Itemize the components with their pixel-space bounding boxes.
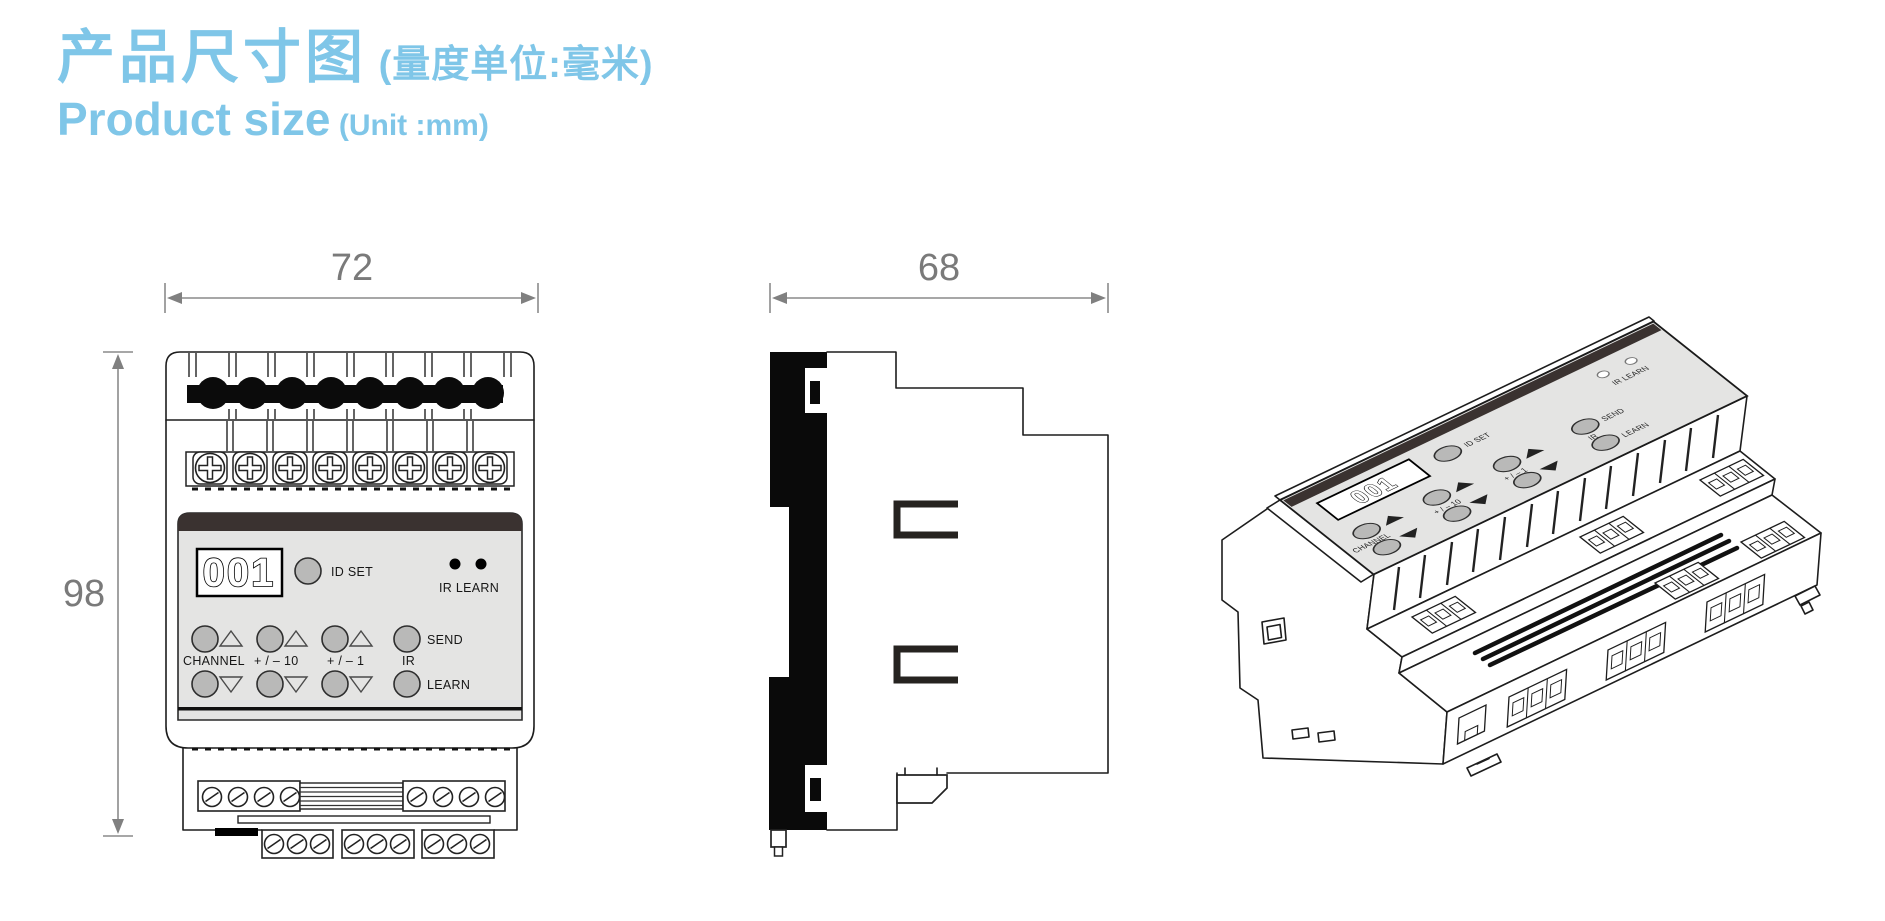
title-chinese: 产品尺寸图 (量度单位:毫米) [57, 28, 654, 89]
front-view: 72 98 [63, 247, 538, 858]
title-en-unit: (Unit :mm) [331, 109, 489, 142]
id-display-value: 001 [203, 551, 276, 595]
front-width-value: 72 [331, 247, 373, 289]
ir-learn-label: IR LEARN [439, 581, 499, 595]
side-profile [769, 352, 1108, 856]
page: 产品尺寸图 (量度单位:毫米) Product size (Unit :mm) [0, 0, 1885, 921]
side-front-band [769, 352, 827, 830]
step10-down-button[interactable] [257, 671, 283, 697]
arrowhead-right-icon [521, 292, 536, 304]
bottom-clip [771, 830, 786, 847]
side-depth-value: 68 [918, 247, 960, 289]
iso-din-latch-left[interactable] [1467, 754, 1501, 776]
learn-button[interactable] [394, 671, 420, 697]
channel-up-button[interactable] [192, 626, 218, 652]
side-depth-dimension: 68 [770, 247, 1108, 313]
title-cn-unit: (量度单位:毫米) [367, 44, 654, 86]
arrowhead-right-icon [1091, 292, 1106, 304]
arrowhead-left-icon [772, 292, 787, 304]
panel-top-stripe [178, 513, 522, 531]
step10-label: + / – 10 [254, 654, 298, 668]
panel-bottom-rule [178, 707, 522, 711]
front-device-body: 001 ID SET IR LEARN [166, 352, 534, 858]
front-width-dimension: 72 [165, 247, 538, 313]
title-english: Product size (Unit :mm) [57, 95, 654, 143]
step1-down-button[interactable] [322, 671, 348, 697]
front-panel: 001 ID SET IR LEARN [178, 513, 522, 720]
ir-label: IR [402, 654, 415, 668]
bottom-black-tab [215, 828, 258, 836]
send-button[interactable] [394, 626, 420, 652]
bottom-thin-bar [238, 816, 490, 823]
arrowhead-up-icon [112, 354, 124, 369]
id-set-button[interactable] [295, 558, 321, 584]
learn-led-icon [476, 559, 487, 570]
din-clip[interactable] [897, 775, 947, 803]
id-set-label: ID SET [331, 565, 373, 579]
channel-label: CHANNEL [183, 654, 245, 668]
step1-up-button[interactable] [322, 626, 348, 652]
title-en-main: Product size [57, 93, 331, 145]
arrowhead-left-icon [167, 292, 182, 304]
arrowhead-down-icon [112, 819, 124, 834]
title-cn-main: 产品尺寸图 [57, 25, 367, 90]
ir-led-icon [450, 559, 461, 570]
channel-down-button[interactable] [192, 671, 218, 697]
send-label: SEND [427, 633, 463, 647]
page-header: 产品尺寸图 (量度单位:毫米) Product size (Unit :mm) [57, 28, 654, 143]
step1-label: + / – 1 [327, 654, 364, 668]
side-body-outline [827, 352, 1108, 830]
bottom-terminals [183, 748, 517, 858]
side-view: 68 [769, 247, 1108, 856]
rail-bracket-lower [897, 649, 958, 680]
isometric-view: 001 ID SET IR LEARN CHANNEL + / – 10 + /… [1222, 317, 1821, 776]
front-height-dimension: 98 [63, 352, 133, 836]
front-height-value: 98 [63, 573, 105, 615]
learn-label: LEARN [427, 678, 470, 692]
rail-bracket-upper [897, 504, 958, 535]
step10-up-button[interactable] [257, 626, 283, 652]
